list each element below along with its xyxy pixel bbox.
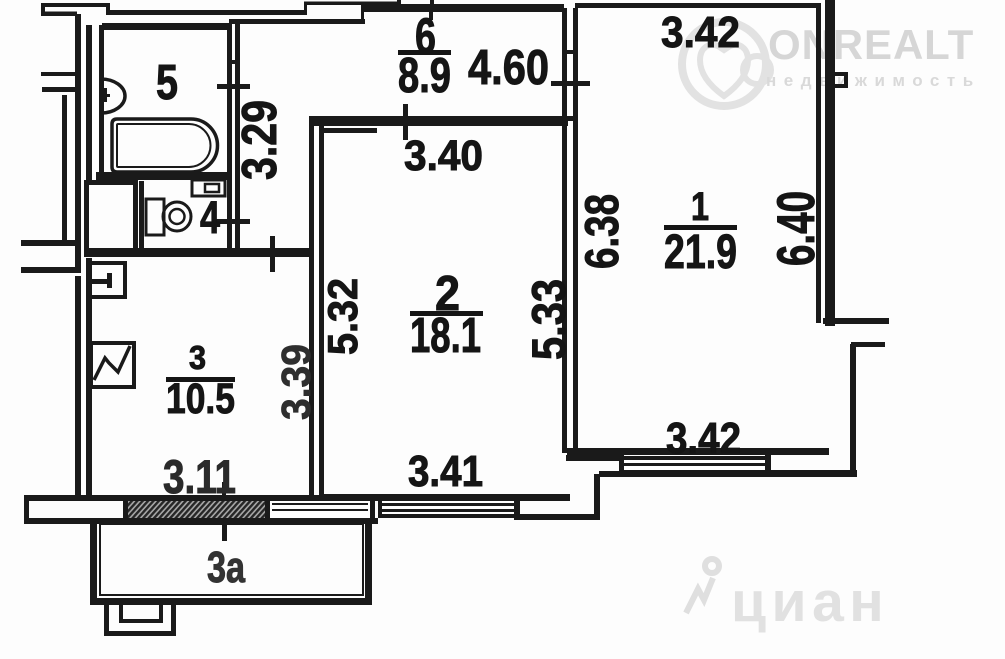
svg-text:4.60: 4.60 — [468, 41, 549, 95]
svg-text:10.5: 10.5 — [166, 375, 235, 423]
svg-text:3.42: 3.42 — [666, 414, 741, 463]
svg-text:3.29: 3.29 — [233, 100, 287, 180]
svg-text:циан: циан — [731, 570, 889, 634]
svg-text:18.1: 18.1 — [410, 309, 481, 363]
svg-text:3.41: 3.41 — [408, 447, 483, 496]
svg-text:ONREALT: ONREALT — [768, 21, 974, 68]
svg-text:5.33: 5.33 — [522, 279, 575, 360]
svg-text:8.9: 8.9 — [398, 49, 451, 103]
svg-text:3.39: 3.39 — [273, 344, 319, 420]
svg-text:3.42: 3.42 — [661, 8, 740, 57]
svg-text:6.38: 6.38 — [575, 194, 628, 269]
svg-text:5: 5 — [156, 56, 178, 110]
svg-text:3.11: 3.11 — [163, 450, 236, 503]
svg-text:3.40: 3.40 — [404, 132, 483, 180]
svg-text:21.9: 21.9 — [664, 226, 737, 279]
svg-text:3a: 3a — [207, 543, 245, 592]
svg-text:5.32: 5.32 — [319, 278, 366, 355]
svg-text:недвижимость: недвижимость — [766, 71, 981, 90]
svg-text:6.40: 6.40 — [767, 191, 826, 266]
svg-text:4: 4 — [200, 192, 220, 243]
svg-text:3: 3 — [189, 339, 206, 376]
svg-text:1: 1 — [691, 185, 709, 229]
